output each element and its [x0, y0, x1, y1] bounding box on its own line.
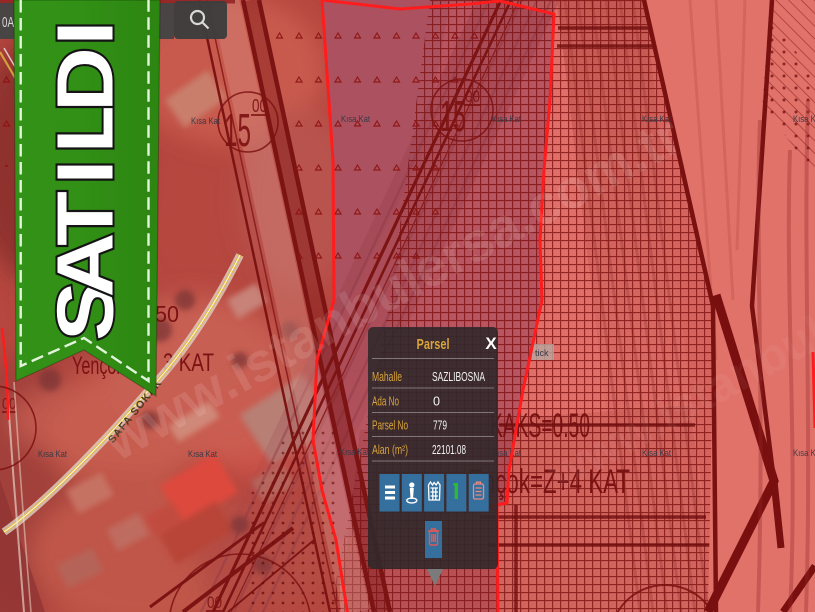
svg-text:50: 50	[155, 301, 179, 327]
svg-text:15: 15	[440, 92, 466, 141]
svg-text:Kısa Kat: Kısa Kat	[38, 449, 67, 460]
svg-text:Mahalle: Mahalle	[372, 369, 402, 384]
svg-text:00: 00	[252, 96, 267, 116]
svg-text:I: I	[40, 21, 129, 46]
svg-text:22101.08: 22101.08	[432, 442, 466, 457]
svg-text:Kısa Kat: Kısa Kat	[340, 447, 369, 458]
svg-text:15: 15	[224, 104, 251, 156]
svg-text:779: 779	[433, 418, 447, 433]
svg-text:Kısa Kat: Kısa Kat	[191, 116, 220, 127]
svg-text:I: I	[40, 160, 129, 185]
svg-text:0A: 0A	[2, 14, 14, 31]
svg-text:D: D	[40, 47, 129, 112]
svg-text:Kısa Kat: Kısa Kat	[188, 449, 217, 460]
svg-text:X: X	[485, 334, 497, 353]
svg-text:Kısa Ka: Kısa Ka	[793, 114, 815, 125]
svg-text:Parsel No: Parsel No	[372, 418, 408, 433]
svg-text:0: 0	[433, 394, 440, 409]
svg-text:Parsel: Parsel	[417, 336, 450, 353]
svg-text:00: 00	[465, 87, 480, 106]
svg-text:Kısa Kat: Kısa Kat	[341, 114, 370, 125]
svg-text:Alan (m²): Alan (m²)	[372, 442, 408, 457]
svg-text:00: 00	[207, 593, 222, 612]
svg-text:Kısa Kat: Kısa Kat	[492, 114, 521, 125]
svg-text:T: T	[40, 191, 129, 246]
svg-text:Ada No: Ada No	[372, 394, 399, 409]
svg-text:tick: tick	[535, 348, 549, 358]
svg-text:Kısa Ka: Kısa Ka	[793, 448, 815, 459]
svg-text:SAZLIBOSNA: SAZLIBOSNA	[432, 369, 485, 384]
